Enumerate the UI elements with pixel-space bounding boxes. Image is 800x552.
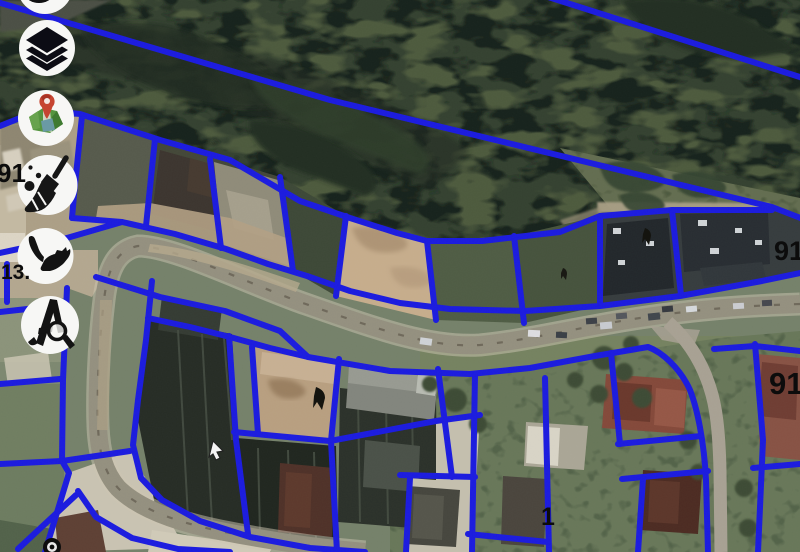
svg-text:91: 91 [0, 158, 26, 188]
svg-text:91: 91 [774, 236, 800, 266]
svg-text:1: 1 [541, 503, 555, 531]
svg-text:13.: 13. [1, 261, 30, 284]
svg-text:915: 915 [769, 366, 800, 401]
